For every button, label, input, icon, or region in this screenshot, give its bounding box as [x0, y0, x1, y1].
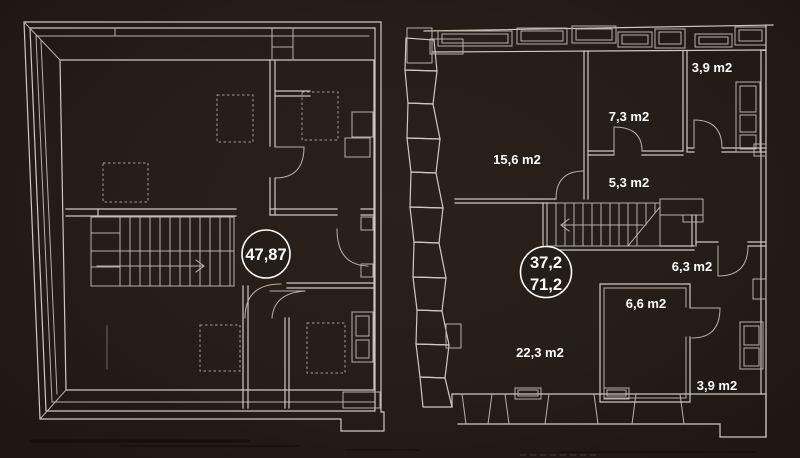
- stone-block: [416, 344, 449, 378]
- wall-line: [683, 51, 687, 151]
- stone-block: [407, 138, 440, 173]
- room-area-label: 3,9 m2: [692, 60, 732, 75]
- wall-corner-block: [407, 28, 432, 63]
- right-plan-stairs: [547, 203, 660, 246]
- fixture-outline: [356, 340, 369, 358]
- room-area-label: 3,9 m2: [697, 378, 737, 393]
- wall-inner-face: [432, 50, 766, 52]
- room-area-label: 6,3 m2: [672, 259, 712, 274]
- wall-block: [683, 215, 703, 222]
- fixture-outline: [352, 112, 373, 137]
- furniture-outline: [103, 163, 148, 202]
- corner-mitre-line: [24, 22, 66, 419]
- stone-block: [420, 377, 452, 407]
- stone-block: [410, 172, 443, 208]
- window-glass: [576, 29, 612, 40]
- right-plan-room-labels: 3,9 m2 7,3 m2 15,6 m2 5,3 m2 6,3 m2 6,6 …: [493, 60, 737, 393]
- left-floor-plan: 47,87: [24, 22, 384, 431]
- wall-block: [753, 279, 766, 299]
- fixture-outline: [740, 115, 756, 132]
- right-plan-fixtures: [736, 82, 763, 369]
- window-glass: [739, 30, 762, 41]
- left-plan-outer-walls: [24, 22, 384, 431]
- fixture-outline: [356, 316, 369, 336]
- left-plan-stairs: [91, 217, 234, 286]
- furniture-outline: [200, 325, 240, 371]
- wall-line: [692, 215, 696, 246]
- wall-line: [588, 151, 683, 155]
- total-area-value: 71,2: [530, 276, 562, 294]
- right-plan-bottom-wall: [452, 388, 766, 437]
- wall-line: [24, 22, 384, 431]
- wall-line: [30, 28, 375, 411]
- wall-line: [287, 283, 374, 288]
- door-swing-arc: [272, 291, 305, 318]
- window-glass: [659, 32, 681, 44]
- furniture-outline: [217, 95, 253, 142]
- shadow-smudges: [30, 441, 755, 455]
- door-swing-arc: [692, 308, 720, 338]
- fixture-outline: [744, 348, 759, 366]
- door-swing-arc: [556, 171, 584, 199]
- right-plan-top-wall: [407, 25, 773, 63]
- floor-plans-canvas: 47,87: [0, 0, 800, 458]
- stair-direction-arrow: [561, 219, 643, 231]
- wall-line: [584, 51, 588, 199]
- room-area-label: 7,3 m2: [609, 109, 649, 124]
- right-floor-plan: 3,9 m2 7,3 m2 15,6 m2 5,3 m2 6,3 m2 6,6 …: [405, 25, 773, 437]
- door-swing-arc: [614, 127, 642, 151]
- floor-plans-drawing: 47,87: [0, 0, 800, 458]
- wall-line: [66, 209, 236, 216]
- wall-band-division: [115, 28, 293, 60]
- window-glass: [521, 31, 563, 41]
- total-area-value: 47,87: [245, 246, 286, 264]
- right-plan-stone-wall: [405, 38, 461, 407]
- wall-line: [547, 246, 694, 250]
- window-glass: [699, 37, 728, 44]
- furniture-outline: [307, 323, 345, 373]
- room-area-label: 22,3 m2: [516, 345, 564, 360]
- stone-block: [410, 207, 443, 243]
- window-block: [517, 28, 567, 44]
- room-area-label: 5,3 m2: [609, 175, 649, 190]
- door-jamb-block: [361, 217, 373, 230]
- left-plan-fixtures: [345, 112, 373, 362]
- fixture-outline: [740, 86, 756, 112]
- fixture-outline: [744, 326, 759, 345]
- wall-line: [270, 60, 275, 146]
- window-block: [695, 34, 732, 47]
- left-plan-interior-walls: [66, 60, 380, 408]
- door-swing-arc: [718, 246, 748, 276]
- window-glass: [622, 35, 648, 44]
- furniture-outline: [302, 92, 338, 140]
- window-block: [618, 32, 652, 47]
- room-area-label: 15,6 m2: [493, 152, 541, 167]
- stair-landing-lines: [91, 217, 234, 286]
- room-area-label: 6,6 m2: [626, 296, 666, 311]
- window-glass: [607, 390, 626, 396]
- door-swing-arc: [694, 120, 722, 148]
- wall-block: [660, 199, 703, 215]
- wall-line: [285, 318, 289, 408]
- wall-line: [543, 203, 547, 246]
- right-plan-area-badge: 37,2 71,2: [521, 247, 572, 298]
- left-plan-furniture: [103, 92, 345, 373]
- stone-block: [416, 310, 449, 345]
- stone-block: [413, 242, 446, 278]
- stone-block: [405, 70, 437, 104]
- stone-block: [413, 277, 446, 311]
- door-swing-arc: [337, 229, 368, 266]
- left-plan-area-badge: 47,87: [242, 230, 290, 278]
- fixture-outline: [345, 138, 370, 157]
- window-glass: [518, 390, 538, 396]
- door-swing-arc: [275, 147, 304, 178]
- wall-line: [36, 36, 374, 402]
- wall-step-corner: [720, 394, 766, 437]
- stair-break-line: [628, 207, 660, 246]
- fixture-outline: [352, 312, 373, 362]
- door-swing-arc: [245, 284, 281, 318]
- wall-line: [270, 209, 374, 215]
- wall-line: [275, 91, 310, 96]
- wall-line: [696, 242, 766, 246]
- living-area-value: 37,2: [530, 254, 562, 272]
- wall-line: [455, 199, 556, 203]
- stone-block: [407, 103, 440, 139]
